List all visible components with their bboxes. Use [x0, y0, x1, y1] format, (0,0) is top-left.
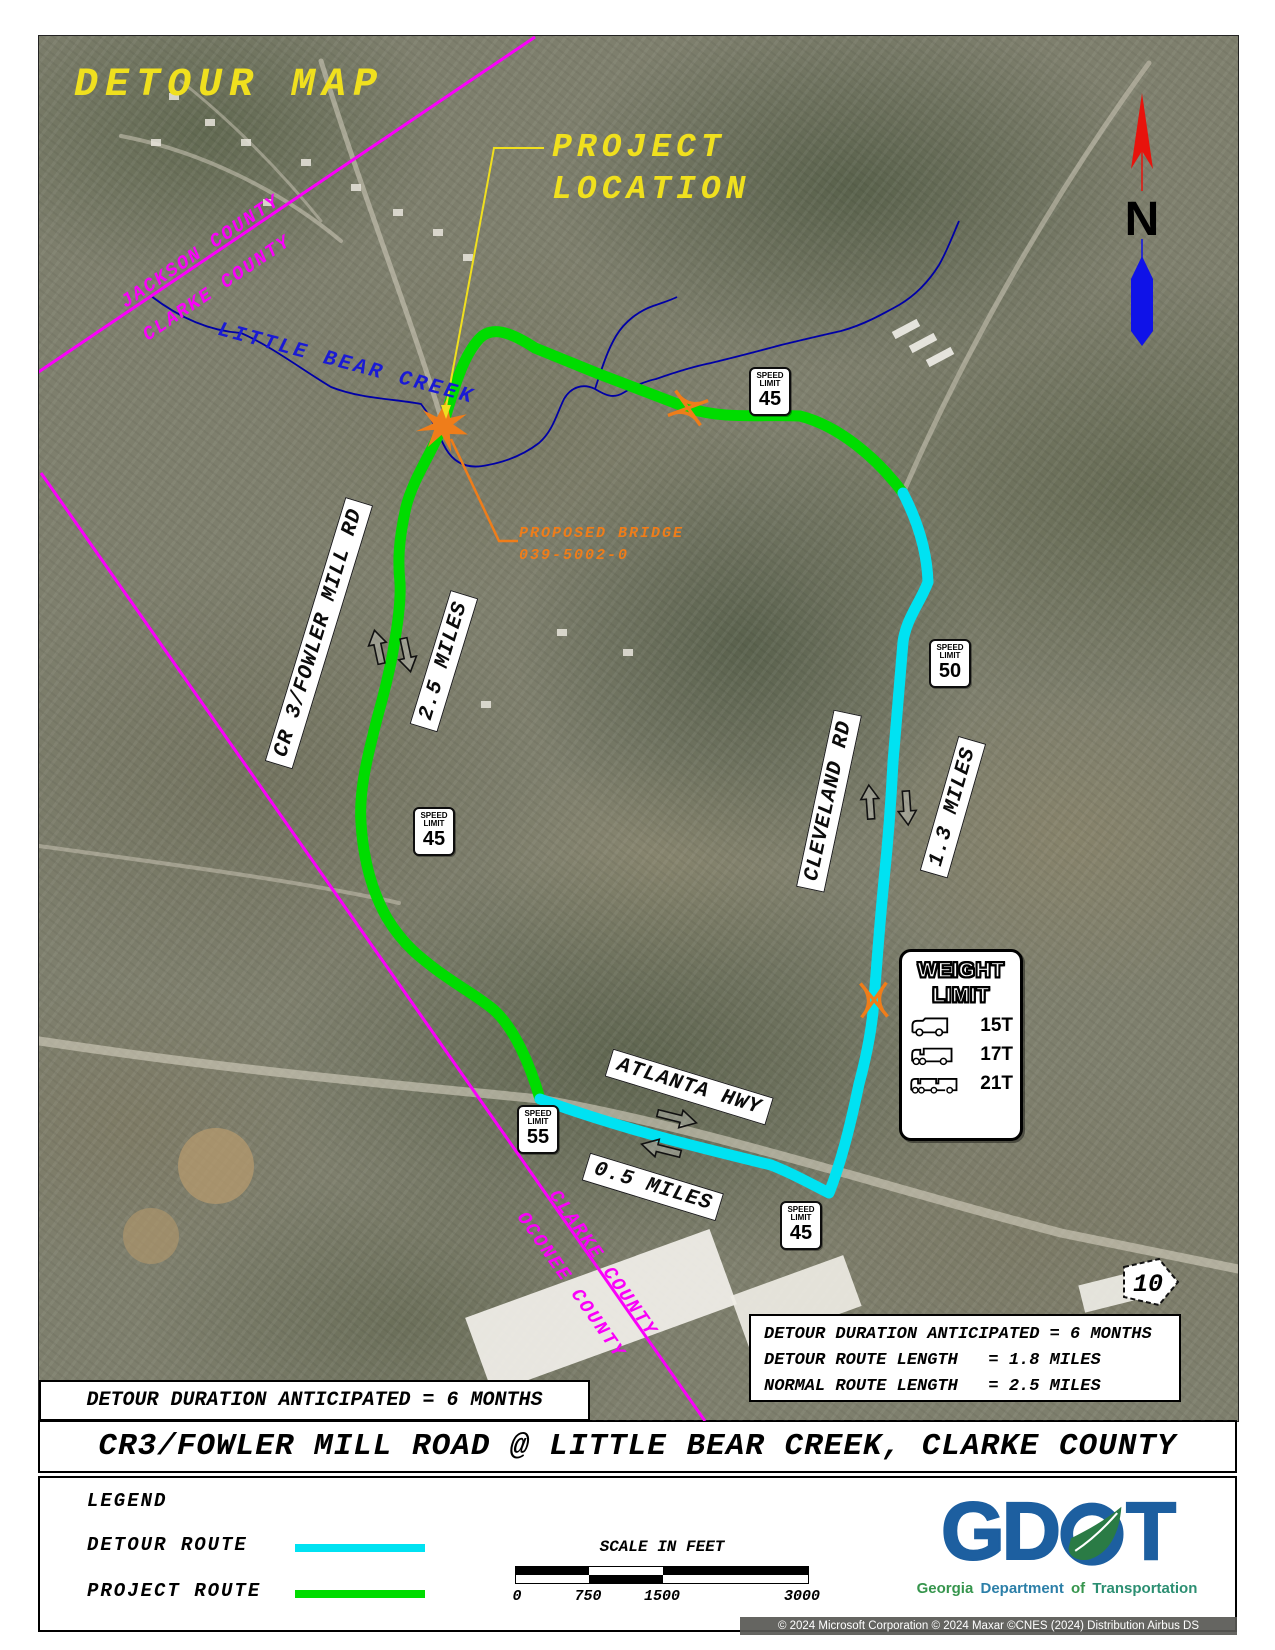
- gdot-logo: G D T Georgia Department of Transportati…: [907, 1486, 1207, 1597]
- scale-bar: [515, 1566, 809, 1584]
- detour-map-page: N 10 DETOUR MAP PROJECT LOCATION JACKSON…: [0, 0, 1275, 1650]
- speed-limit-sign-50-cleveland: SPEED LIMIT 50: [929, 639, 971, 688]
- detour-route-swatch: [295, 1544, 425, 1552]
- speed-limit-sign-45-atlanta: SPEED LIMIT 45: [780, 1201, 822, 1250]
- tagline-transportation: Transportation: [1092, 1580, 1197, 1597]
- tagline-of: of: [1071, 1580, 1085, 1597]
- tagline-georgia: Georgia: [917, 1580, 974, 1597]
- legend-panel: LEGEND DETOUR ROUTE PROJECT ROUTE SCALE …: [38, 1476, 1237, 1632]
- gdot-tagline: Georgia Department of Transportation: [907, 1580, 1207, 1597]
- normal-length-line: NORMAL ROUTE LENGTH = 2.5 MILES: [764, 1374, 1179, 1400]
- imagery-credits: © 2024 Microsoft Corporation © 2024 Maxa…: [740, 1617, 1237, 1635]
- weight-value: 21T: [980, 1073, 1013, 1095]
- detour-duration-line: DETOUR DURATION ANTICIPATED = 6 MONTHS: [764, 1322, 1179, 1348]
- project-location-label-line1: PROJECT: [552, 129, 726, 166]
- project-route-swatch: [295, 1590, 425, 1598]
- tagline-department: Department: [980, 1580, 1063, 1597]
- scale-bar-row-top: [516, 1567, 808, 1575]
- detour-duration-note: DETOUR DURATION ANTICIPATED = 6 MONTHS: [39, 1380, 590, 1421]
- weight-value: 17T: [980, 1044, 1013, 1066]
- map-title: DETOUR MAP: [74, 63, 384, 108]
- weight-limit-sign: WEIGHT LIMIT 15T 17T: [899, 949, 1023, 1141]
- weight-row-double-trailer: 21T: [902, 1073, 1020, 1095]
- proposed-bridge-leader-line: [451, 439, 518, 541]
- scale-tick-3000: 3000: [784, 1588, 820, 1605]
- weight-limit-title-line1: WEIGHT: [902, 958, 1020, 983]
- scale-tick-0: 0: [512, 1588, 521, 1605]
- detour-length-line: DETOUR ROUTE LENGTH = 1.8 MILES: [764, 1348, 1179, 1374]
- gdot-letter-t: T: [1126, 1489, 1173, 1575]
- gdot-wordmark: G D T: [907, 1486, 1207, 1578]
- sheet-title-bar: CR3/FOWLER MILL ROAD @ LITTLE BEAR CREEK…: [38, 1420, 1237, 1473]
- sheet-title: CR3/FOWLER MILL ROAD @ LITTLE BEAR CREEK…: [98, 1429, 1176, 1464]
- aerial-map: N 10 DETOUR MAP PROJECT LOCATION JACKSON…: [38, 35, 1239, 1422]
- scale-tick-750: 750: [574, 1588, 601, 1605]
- gdot-letter-d: D: [1002, 1489, 1058, 1575]
- route-number: 10: [1133, 1270, 1163, 1299]
- scale-bar-row-bottom: [516, 1575, 808, 1583]
- detour-info-box: DETOUR DURATION ANTICIPATED = 6 MONTHS D…: [749, 1314, 1181, 1402]
- speed-limit-sign-45-north: SPEED LIMIT 45: [749, 367, 791, 416]
- legend-heading: LEGEND: [87, 1490, 167, 1512]
- northbound-arrow-cleveland: [860, 784, 880, 819]
- box-truck-icon: [909, 1015, 953, 1037]
- legend-item-project-label: PROJECT ROUTE: [87, 1580, 261, 1602]
- weight-row-box-truck: 15T: [902, 1015, 1020, 1037]
- scale-tick-1500: 1500: [644, 1588, 680, 1605]
- speed-limit-sign-45-fowler: SPEED LIMIT 45: [413, 807, 455, 856]
- weight-value: 15T: [980, 1015, 1013, 1037]
- gdot-letter-g: G: [941, 1489, 1002, 1575]
- weight-limit-title-line2: LIMIT: [902, 983, 1020, 1008]
- double-trailer-truck-icon: [909, 1073, 961, 1095]
- gdot-o-leaf-icon: [1056, 1490, 1128, 1574]
- north-label: N: [1125, 193, 1160, 246]
- legend-item-detour-label: DETOUR ROUTE: [87, 1534, 248, 1556]
- semi-truck-icon: [909, 1044, 957, 1066]
- weight-row-semi-truck: 17T: [902, 1044, 1020, 1066]
- proposed-bridge-label-line1: PROPOSED BRIDGE: [519, 525, 684, 542]
- north-arrow: N: [1125, 93, 1160, 346]
- speed-limit-sign-55-atlanta: SPEED LIMIT 55: [517, 1105, 559, 1154]
- southbound-arrow-cleveland: [897, 790, 917, 825]
- state-route-10-marker: 10: [1124, 1259, 1178, 1305]
- project-location-label-line2: LOCATION: [552, 171, 750, 208]
- scale-bar-title: SCALE IN FEET: [600, 1538, 725, 1556]
- proposed-bridge-label-line2: 039-5002-0: [519, 547, 629, 564]
